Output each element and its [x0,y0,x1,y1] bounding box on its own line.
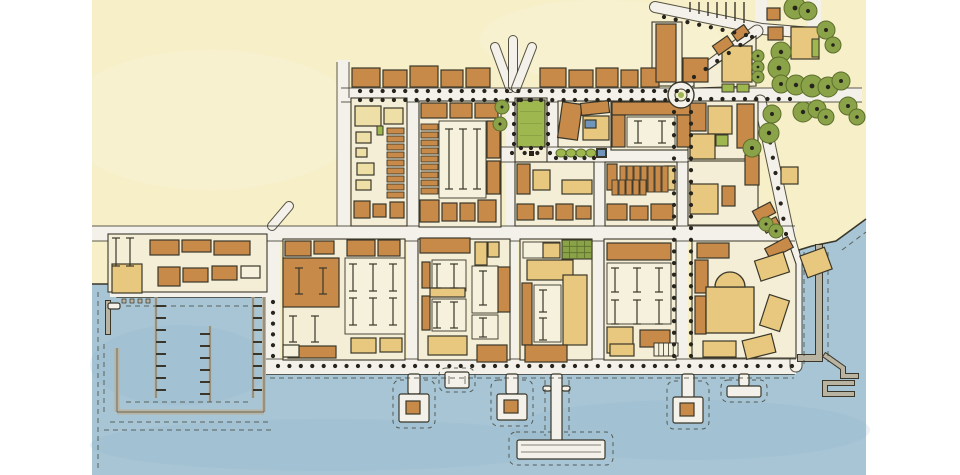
street-tree [641,89,645,93]
street-tree [710,364,714,368]
tree-trunk-dot [806,9,810,13]
street-tree [471,98,475,102]
rowhouse [619,180,625,195]
street-tree [641,364,645,368]
street-tree [546,102,550,106]
rowhouse [421,172,438,178]
building [380,338,402,352]
pier-pavilion [680,403,694,416]
building [522,283,532,345]
building [183,268,208,282]
street-tree [344,364,348,368]
street-tree [672,122,676,126]
tree-trunk-dot [757,66,760,69]
street-tree [756,364,760,368]
building [695,296,706,334]
pier [727,386,761,397]
building [283,258,339,307]
street-tree [358,89,362,93]
building [498,267,510,312]
street-tree [403,89,407,93]
tree-trunk-dot [815,107,819,111]
street-tree [781,217,785,221]
pier [739,374,749,386]
building [722,46,752,82]
street-tree [550,364,554,368]
street-tree [584,98,588,102]
tree-trunk-dot [498,122,501,125]
street-tree [689,354,693,358]
street-tree [595,89,599,93]
street-tree [554,156,558,160]
dock-post [146,299,150,303]
street-tree [271,311,275,315]
street-tree [744,364,748,368]
building [442,203,457,221]
rowhouse [612,180,618,195]
courtyard [472,266,498,313]
paseo-planting [556,149,566,157]
street-tree [595,98,599,102]
street-tree [675,89,679,93]
building [354,201,370,218]
street-tree [653,364,657,368]
street-tree [709,97,713,101]
rowhouse [648,166,654,192]
street-tree [437,98,441,102]
building [475,242,487,265]
street-tree [573,156,577,160]
building [158,267,180,286]
courtyard [345,258,405,334]
building [596,68,618,87]
building [347,240,375,256]
street-tree [689,156,693,160]
planting-bed [716,135,728,146]
building [357,163,374,175]
street-tree [482,89,486,93]
rowhouse [421,124,438,130]
rowhouse [387,192,404,198]
street-tree [504,364,508,368]
street-tree [271,300,275,304]
street-tree [271,354,275,358]
street-tree [546,142,550,146]
street-tree [663,89,667,93]
building [378,240,400,256]
building [478,200,496,222]
building [517,204,534,220]
street-tree [754,97,758,101]
street-tree [519,146,523,150]
building [314,241,334,254]
street-tree [672,238,676,242]
street-tree [596,364,600,368]
street-tree [276,364,280,368]
street-tree [299,364,303,368]
pier-pavilion [504,400,518,413]
street-tree [732,97,736,101]
building [697,243,729,258]
tree-trunk-dot [831,43,835,47]
street-tree [641,98,645,102]
tree-trunk-dot [767,131,771,135]
street-tree [732,30,736,34]
tree-trunk-dot [770,112,774,116]
street-tree [697,23,701,27]
street-tree [448,98,452,102]
street-tree [369,89,373,93]
street-tree [471,89,475,93]
building [410,66,438,87]
street-tree [672,354,676,358]
street-tree [527,364,531,368]
street-tree [592,156,596,160]
street-tree [561,89,565,93]
street-tree [672,319,676,323]
street-tree [516,364,520,368]
rowhouse [387,144,404,150]
street-tree [692,75,696,79]
street-tree [392,89,396,93]
rowhouse [387,128,404,134]
building [538,206,553,219]
pier [408,374,420,394]
street-tree [424,364,428,368]
building [285,241,311,256]
street-tree [689,110,693,114]
street-tree [459,364,463,368]
street-tree [743,97,747,101]
building [569,70,593,87]
tree-trunk-dot [794,83,798,87]
street-tree [333,364,337,368]
building [630,206,648,220]
street-tree [482,98,486,102]
tree-trunk-dot [779,82,783,86]
building [610,344,634,356]
street-tree [561,98,565,102]
street-tree [426,98,430,102]
building [540,68,566,87]
rowhouse [387,160,404,166]
paseo-planting [576,149,586,157]
building [525,345,567,362]
street-tree [689,284,693,288]
planting-bed [812,39,819,57]
building [612,115,625,147]
building [356,148,367,157]
street-tree [744,33,748,37]
street-tree [271,322,275,326]
rowhouse [421,156,438,162]
building [351,338,376,353]
street-tree [672,307,676,311]
pier [543,386,551,391]
street-tree [704,67,708,71]
street-tree [607,98,611,102]
dock-post [138,299,142,303]
dock-post [130,299,134,303]
building [214,241,250,255]
planting-bed [722,84,734,92]
street-tree [573,89,577,93]
street-tree [652,98,656,102]
plaza-monument [529,151,534,156]
building [150,240,179,255]
street-tree [493,364,497,368]
building [533,170,550,190]
street-tree [629,89,633,93]
building [543,243,560,258]
building [283,345,299,357]
street-tree [689,307,693,311]
street-tree [426,89,430,93]
rowhouse [387,168,404,174]
street-tree [689,331,693,335]
street-tree [436,364,440,368]
street-tree [672,180,676,184]
street-tree [689,273,693,277]
building [651,204,673,220]
building [767,8,780,20]
street-tree [437,89,441,93]
street-tree [546,132,550,136]
street-tree [505,89,509,93]
building [781,167,798,184]
street-tree [672,296,676,300]
street-tree [777,97,781,101]
rowhouse [421,140,438,146]
planting-bed [377,126,383,135]
land-wash [60,50,360,190]
street-tree [413,364,417,368]
rowhouse [421,132,438,138]
street-tree [738,43,742,47]
pier [517,440,605,459]
pier-pavilion [406,401,420,414]
street-tree [523,151,527,155]
street-tree [662,15,666,19]
street-tree [689,180,693,184]
street-tree [689,342,693,346]
rowhouse [626,180,632,195]
building [420,238,470,253]
street-tree [550,89,554,93]
building [356,180,371,190]
street-tree [672,214,676,218]
planting-bed [737,84,749,92]
street-tree [482,364,486,368]
building [580,101,609,116]
street-tree [548,151,552,155]
tree-trunk-dot [777,66,782,71]
street-tree [733,364,737,368]
pool [585,120,596,128]
building [422,262,430,288]
building [558,102,583,140]
tree-trunk-dot [779,50,783,54]
street-tree [529,146,533,150]
street-tree [672,284,676,288]
tree-trunk-dot [757,76,760,79]
street [337,60,349,240]
street-tree [512,142,516,146]
building [460,203,475,221]
building [383,70,407,87]
building [563,275,587,345]
tree-trunk-dot [826,85,830,89]
street-tree [460,98,464,102]
street-tree [619,364,623,368]
street-tree [687,364,691,368]
street-tree [369,98,373,102]
building [708,106,732,134]
street-tree [582,156,586,160]
street-tree [512,122,516,126]
street-tree [403,98,407,102]
street-tree [573,364,577,368]
street-tree [689,203,693,207]
street-tree [607,89,611,93]
street-tree [392,98,396,102]
street-tree [447,364,451,368]
building [477,345,507,362]
street-tree [460,89,464,93]
street-tree [672,226,676,230]
building [182,240,211,252]
street-tree [510,151,514,155]
street-tree [720,28,724,32]
street-tree [381,98,385,102]
street-tree [689,226,693,230]
pier [506,374,518,394]
street-tree [550,98,554,102]
street-tree [784,232,788,236]
street-tree [573,98,577,102]
building [556,204,573,220]
building [656,24,676,82]
fountain [598,150,605,156]
water-wash [90,419,570,471]
building [745,155,759,185]
street-tree [563,156,567,160]
street-tree [689,296,693,300]
street-tree [618,89,622,93]
building [390,202,404,218]
street-tree [685,20,689,24]
street-tree [788,97,792,101]
street-tree [664,364,668,368]
street-tree [699,364,703,368]
street-tree [776,186,780,190]
street-tree [539,89,543,93]
street-tree [539,364,543,368]
building [690,134,715,159]
tree-trunk-dot [500,105,503,108]
street-tree [390,364,394,368]
street-tree [546,112,550,116]
street-tree [672,273,676,277]
street-tree [584,364,588,368]
building [430,288,465,297]
building [488,242,499,257]
rowhouse [387,176,404,182]
rowhouse [387,136,404,142]
building [241,266,260,278]
street-tree [790,364,794,368]
street-tree [689,133,693,137]
street-tree [689,145,693,149]
tree-trunk-dot [839,79,843,83]
street-tree [767,364,771,368]
tree-trunk-dot [810,84,815,89]
tree-trunk-dot [824,28,828,32]
street-tree [322,364,326,368]
dock-post [122,299,126,303]
building [112,264,142,293]
street-tree [689,261,693,265]
street-tree [672,156,676,160]
building [517,164,530,194]
street-tree [271,343,275,347]
street-tree [494,89,498,93]
rowhouse [421,188,438,194]
street-tree [686,89,690,93]
street-tree [698,97,702,101]
rowhouse [655,166,661,192]
building [690,103,706,131]
building [450,103,472,118]
landmark-hall [706,287,754,333]
street-tree [519,98,523,102]
rowhouse [421,148,438,154]
building [576,206,591,219]
courtyard [534,285,561,342]
street-tree [367,364,371,368]
street-tree [672,145,676,149]
street-tree [676,364,680,368]
tree-trunk-dot [824,115,828,119]
street-tree [528,89,532,93]
street-tree [672,168,676,172]
street [407,95,419,363]
street-tree [663,98,667,102]
street-tree [778,364,782,368]
tree-trunk-dot [764,222,767,225]
tree-trunk-dot [846,104,850,108]
street-tree [358,98,362,102]
courtyard [607,263,671,324]
street-tree [402,364,406,368]
street-tree [512,112,516,116]
rowhouse [421,180,438,186]
street-tree [672,342,676,346]
street-tree [672,261,676,265]
paseo-planting [586,149,596,157]
street-tree [271,332,275,336]
street-tree [310,364,314,368]
street-tree [750,35,754,39]
street-tree [721,364,725,368]
building [356,132,371,143]
building [722,186,735,206]
tree-trunk-dot [774,229,777,232]
building [422,296,430,330]
rowhouse [633,180,639,195]
rowhouse [387,152,404,158]
street-tree [727,51,731,55]
